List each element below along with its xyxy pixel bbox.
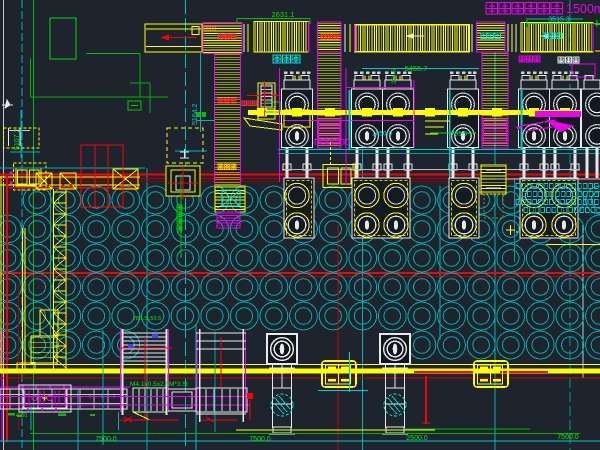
svg-text:1500m: 1500m (566, 2, 600, 16)
svg-text:7500.0: 7500.0 (249, 436, 271, 443)
svg-text:7500.0: 7500.0 (95, 436, 117, 443)
svg-text:M4.1x0.5x2.5M*3.5t: M4.1x0.5x2.5M*3.5t (130, 381, 188, 388)
svg-text:361.6: 361.6 (392, 68, 398, 84)
svg-text:1050.9: 1050.9 (372, 131, 392, 138)
svg-text:5455.7: 5455.7 (405, 64, 428, 73)
svg-text:761.5: 761.5 (451, 131, 468, 138)
svg-text:7B1.5L50.5: 7B1.5L50.5 (133, 316, 161, 322)
svg-text:4100: 4100 (16, 413, 27, 419)
svg-text:2631.1: 2631.1 (272, 10, 295, 19)
svg-text:3515.3: 3515.3 (548, 17, 570, 24)
svg-text:7500.0: 7500.0 (557, 434, 579, 441)
svg-text:2500.0: 2500.0 (406, 435, 428, 442)
